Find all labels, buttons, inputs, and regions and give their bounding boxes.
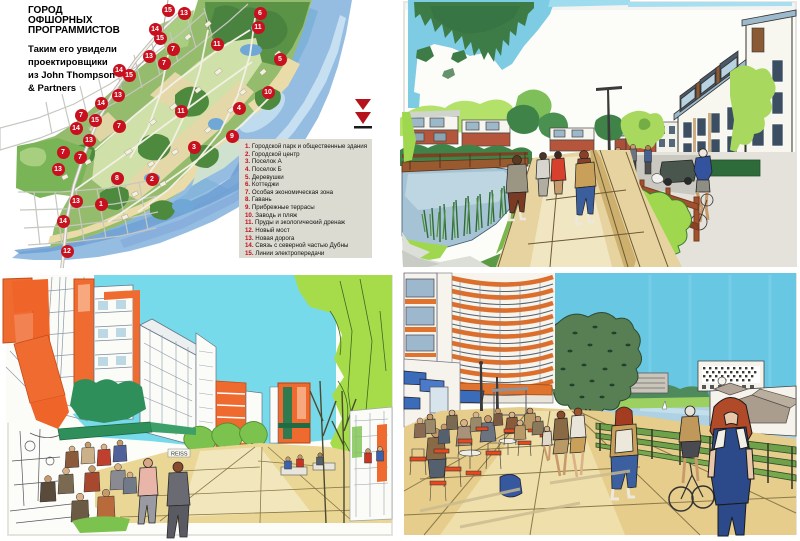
svg-text:REISS: REISS — [171, 452, 188, 458]
